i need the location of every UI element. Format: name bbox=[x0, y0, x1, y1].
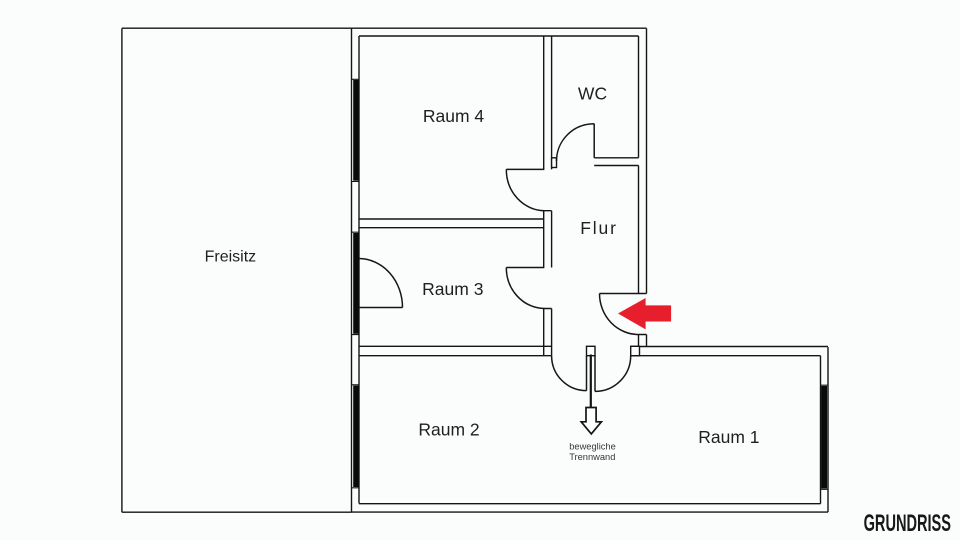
svg-text:Freisitz: Freisitz bbox=[205, 248, 257, 265]
svg-text:Raum 4: Raum 4 bbox=[423, 106, 485, 126]
svg-text:GRUNDRISS: GRUNDRISS bbox=[864, 510, 951, 537]
svg-text:Raum 2: Raum 2 bbox=[418, 420, 479, 440]
svg-text:Trennwand: Trennwand bbox=[569, 452, 615, 462]
svg-text:bewegliche: bewegliche bbox=[569, 442, 616, 452]
svg-text:WC: WC bbox=[578, 84, 607, 104]
svg-text:Raum 3: Raum 3 bbox=[422, 279, 483, 299]
svg-text:Raum 1: Raum 1 bbox=[698, 427, 759, 447]
svg-text:Flur: Flur bbox=[580, 218, 618, 238]
